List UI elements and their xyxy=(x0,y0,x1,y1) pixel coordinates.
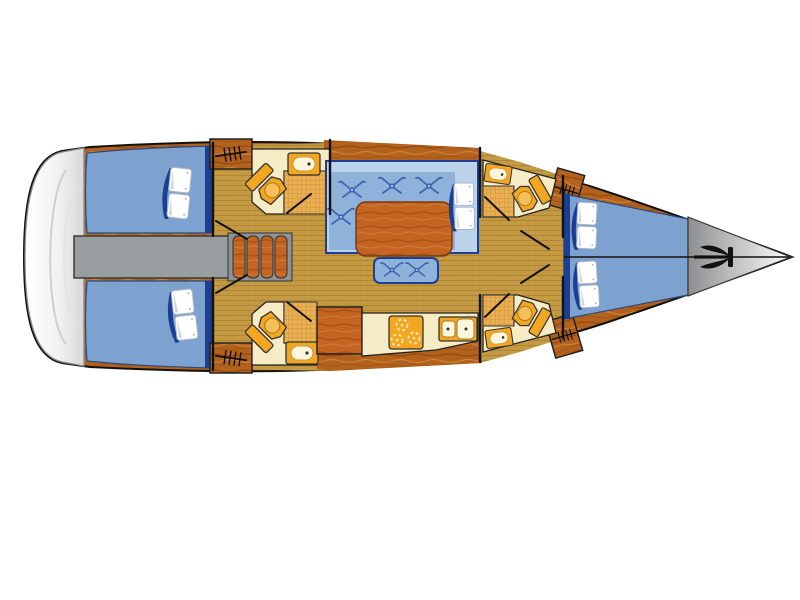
aft-cabin-starboard xyxy=(86,281,213,368)
sink xyxy=(286,342,318,364)
yacht-floor-plan xyxy=(0,0,800,600)
shower-grate xyxy=(284,171,330,214)
pillows xyxy=(572,261,600,310)
step xyxy=(275,236,287,278)
aft-head-port xyxy=(245,149,330,214)
hanging-locker-aft-starboard xyxy=(210,343,252,373)
berth xyxy=(86,146,213,233)
shower-grate xyxy=(483,186,514,217)
settee-pillows xyxy=(449,183,475,231)
hanging-locker-aft-port xyxy=(210,139,252,169)
double-sink xyxy=(439,317,477,341)
step xyxy=(247,236,259,278)
galley-cabinet xyxy=(317,307,362,354)
salon-top-wood-band xyxy=(324,140,480,163)
shower-grate xyxy=(483,295,514,326)
engine-compartment xyxy=(74,236,230,278)
step xyxy=(261,236,273,278)
yacht-floor-plan-page xyxy=(0,0,800,600)
aft-head-starboard xyxy=(245,302,318,365)
sink xyxy=(288,153,320,175)
aft-cabin-port xyxy=(86,146,213,233)
salon-table xyxy=(356,202,452,256)
companionway-stairs xyxy=(228,233,292,281)
salon-bench xyxy=(374,258,438,283)
sink xyxy=(484,163,512,185)
sink xyxy=(485,327,513,349)
step xyxy=(233,236,245,278)
shower-grate xyxy=(284,302,317,343)
